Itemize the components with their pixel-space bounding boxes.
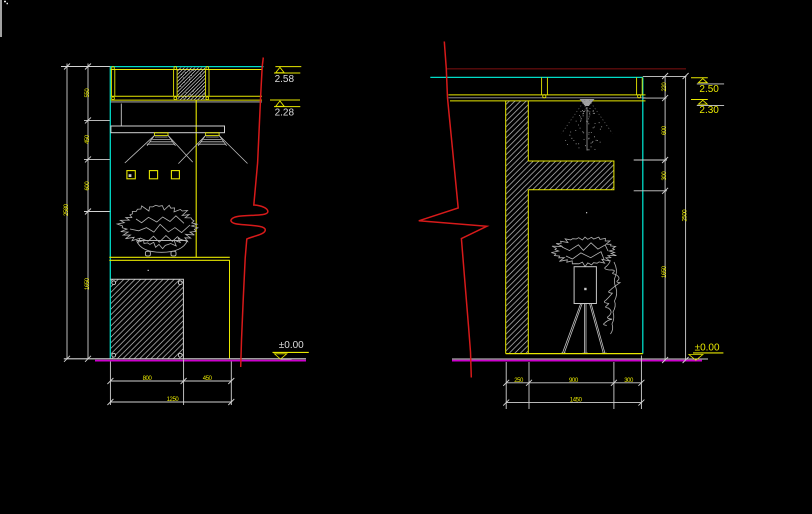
svg-text:250: 250 [514, 378, 524, 384]
svg-text:2.58: 2.58 [275, 74, 295, 85]
svg-text:600: 600 [662, 125, 668, 135]
svg-text:800: 800 [143, 376, 153, 382]
svg-text:450: 450 [85, 134, 91, 144]
svg-text:2500: 2500 [683, 209, 689, 222]
svg-text:220: 220 [662, 82, 668, 92]
svg-text:2.28: 2.28 [275, 108, 295, 119]
svg-text:300: 300 [662, 171, 668, 181]
svg-text:1450: 1450 [570, 398, 583, 404]
svg-text:450: 450 [203, 376, 213, 382]
svg-text:±0.00: ±0.00 [695, 342, 720, 353]
svg-text:550: 550 [85, 88, 91, 98]
svg-text:600: 600 [85, 181, 91, 191]
svg-text:±0.00: ±0.00 [279, 340, 304, 351]
svg-text:1650: 1650 [662, 265, 668, 278]
svg-text:300: 300 [624, 378, 634, 384]
svg-text:2580: 2580 [64, 203, 70, 216]
svg-text:2.30: 2.30 [699, 105, 719, 116]
svg-text:1250: 1250 [167, 397, 180, 403]
svg-text:2.50: 2.50 [699, 84, 719, 95]
svg-text:1650: 1650 [85, 277, 91, 290]
svg-text:900: 900 [569, 378, 579, 384]
